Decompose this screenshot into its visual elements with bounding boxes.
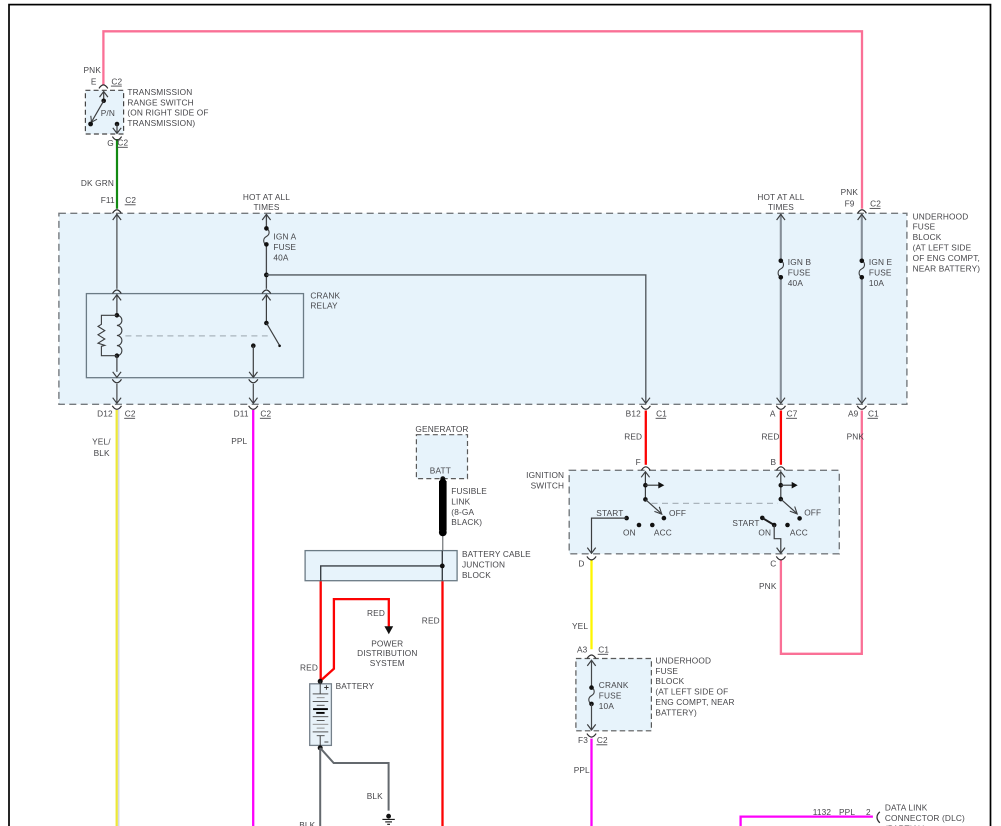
- svg-text:HOT AT ALL: HOT AT ALL: [243, 192, 290, 202]
- svg-text:PPL: PPL: [839, 807, 855, 817]
- svg-text:BLOCK: BLOCK: [462, 570, 491, 580]
- svg-text:FUSE: FUSE: [273, 242, 296, 252]
- svg-text:A3: A3: [577, 645, 588, 655]
- svg-text:40A: 40A: [273, 252, 289, 262]
- svg-text:IGN E: IGN E: [869, 257, 893, 267]
- svg-text:CRANK: CRANK: [599, 680, 629, 690]
- svg-text:(ON RIGHT SIDE OF: (ON RIGHT SIDE OF: [127, 108, 208, 118]
- svg-text:BATTERY CABLE: BATTERY CABLE: [462, 549, 531, 559]
- svg-text:PPL: PPL: [231, 436, 247, 446]
- svg-text:10A: 10A: [869, 278, 885, 288]
- svg-text:B12: B12: [626, 409, 641, 419]
- svg-text:E: E: [91, 77, 97, 87]
- svg-text:RANGE SWITCH: RANGE SWITCH: [127, 97, 193, 107]
- svg-text:40A: 40A: [788, 278, 804, 288]
- svg-text:A9: A9: [848, 409, 859, 419]
- svg-text:FUSIBLE: FUSIBLE: [451, 486, 487, 496]
- svg-text:DATA LINK: DATA LINK: [885, 803, 928, 813]
- svg-text:OF ENG COMPT,: OF ENG COMPT,: [913, 253, 980, 263]
- svg-text:HOT AT ALL: HOT AT ALL: [757, 192, 804, 202]
- svg-text:C2: C2: [117, 138, 128, 148]
- svg-text:IGN A: IGN A: [273, 232, 296, 242]
- svg-text:CONNECTOR (DLC): CONNECTOR (DLC): [885, 813, 965, 823]
- svg-text:F: F: [636, 457, 641, 467]
- svg-text:C2: C2: [597, 735, 608, 745]
- svg-text:C1: C1: [656, 409, 667, 419]
- svg-text:C1: C1: [868, 409, 879, 419]
- svg-text:C1: C1: [598, 645, 609, 655]
- svg-text:RED: RED: [367, 608, 385, 618]
- svg-text:RELAY: RELAY: [310, 301, 338, 311]
- svg-text:TRANSMISSION: TRANSMISSION: [127, 87, 192, 97]
- svg-text:TIMES: TIMES: [253, 202, 279, 212]
- svg-text:FUSE: FUSE: [599, 690, 622, 700]
- svg-text:DK GRN: DK GRN: [81, 178, 114, 188]
- svg-text:G: G: [107, 138, 114, 148]
- svg-text:D: D: [578, 559, 584, 569]
- svg-text:BLOCK: BLOCK: [655, 676, 684, 686]
- svg-text:BATTERY: BATTERY: [336, 681, 375, 691]
- svg-text:2: 2: [866, 807, 871, 817]
- svg-text:FUSE: FUSE: [913, 222, 936, 232]
- svg-text:TRANSMISSION): TRANSMISSION): [127, 118, 195, 128]
- svg-text:YEL/: YEL/: [92, 437, 111, 447]
- svg-text:FUSE: FUSE: [788, 267, 811, 277]
- svg-text:ENG COMPT, NEAR: ENG COMPT, NEAR: [655, 697, 734, 707]
- svg-text:BATT: BATT: [430, 466, 451, 476]
- svg-text:START: START: [732, 518, 759, 528]
- svg-text:NEAR BATTERY): NEAR BATTERY): [913, 263, 981, 273]
- svg-text:B: B: [771, 457, 777, 467]
- svg-text:FUSE: FUSE: [869, 267, 892, 277]
- svg-text:C2: C2: [125, 409, 136, 419]
- svg-text:RED: RED: [300, 663, 318, 673]
- svg-text:BLOCK: BLOCK: [913, 232, 942, 242]
- svg-text:C: C: [770, 559, 776, 569]
- svg-text:1132: 1132: [813, 807, 832, 817]
- svg-text:SWITCH: SWITCH: [531, 480, 565, 490]
- svg-text:BLK: BLK: [367, 791, 383, 801]
- svg-text:C2: C2: [260, 409, 271, 419]
- svg-text:F9: F9: [845, 199, 855, 209]
- svg-text:(AT LEFT SIDE OF: (AT LEFT SIDE OF: [655, 687, 728, 697]
- svg-text:ON: ON: [758, 528, 771, 538]
- svg-text:BLACK): BLACK): [451, 517, 482, 527]
- svg-text:LINK: LINK: [451, 496, 470, 506]
- svg-text:POWER: POWER: [371, 639, 403, 649]
- svg-text:START: START: [596, 508, 623, 518]
- svg-text:F3: F3: [578, 735, 588, 745]
- svg-text:D12: D12: [97, 409, 113, 419]
- svg-text:PNK: PNK: [847, 431, 865, 441]
- svg-text:BATTERY): BATTERY): [655, 707, 697, 717]
- svg-text:JUNCTION: JUNCTION: [462, 559, 505, 569]
- svg-text:BLK: BLK: [299, 820, 315, 826]
- svg-text:BLK: BLK: [94, 448, 110, 458]
- svg-text:(AT LEFT SIDE: (AT LEFT SIDE: [913, 243, 972, 253]
- svg-text:P/N: P/N: [101, 108, 115, 118]
- svg-text:GENERATOR: GENERATOR: [415, 424, 468, 434]
- svg-text:FUSE: FUSE: [655, 666, 678, 676]
- svg-text:UNDERHOOD: UNDERHOOD: [655, 655, 711, 665]
- svg-text:DISTRIBUTION: DISTRIBUTION: [357, 648, 417, 658]
- svg-text:PNK: PNK: [759, 581, 777, 591]
- svg-text:ACC: ACC: [654, 528, 672, 538]
- svg-text:(8-GA: (8-GA: [451, 507, 474, 517]
- svg-text:PPL: PPL: [574, 765, 590, 775]
- svg-text:ON: ON: [623, 528, 636, 538]
- svg-text:PNK: PNK: [84, 65, 102, 75]
- svg-text:PNK: PNK: [841, 187, 859, 197]
- svg-text:C2: C2: [125, 195, 136, 205]
- svg-text:IGNITION: IGNITION: [526, 470, 564, 480]
- svg-text:RED: RED: [422, 616, 440, 626]
- svg-text:RED: RED: [624, 431, 642, 441]
- svg-text:10A: 10A: [599, 701, 615, 711]
- svg-text:UNDERHOOD: UNDERHOOD: [913, 211, 969, 221]
- svg-text:C2: C2: [870, 199, 881, 209]
- svg-text:D11: D11: [234, 409, 249, 419]
- svg-text:YEL: YEL: [572, 621, 588, 631]
- svg-text:IGN B: IGN B: [788, 257, 812, 267]
- svg-text:RED: RED: [762, 431, 780, 441]
- svg-text:ACC: ACC: [790, 528, 808, 538]
- svg-text:A: A: [770, 409, 776, 419]
- svg-text:CRANK: CRANK: [310, 290, 340, 300]
- svg-text:OFF: OFF: [669, 508, 686, 518]
- svg-text:TIMES: TIMES: [768, 202, 794, 212]
- svg-text:C7: C7: [787, 409, 798, 419]
- svg-text:F11: F11: [101, 195, 115, 205]
- svg-text:SYSTEM: SYSTEM: [370, 658, 405, 668]
- svg-text:OFF: OFF: [804, 508, 821, 518]
- svg-text:C2: C2: [111, 76, 122, 86]
